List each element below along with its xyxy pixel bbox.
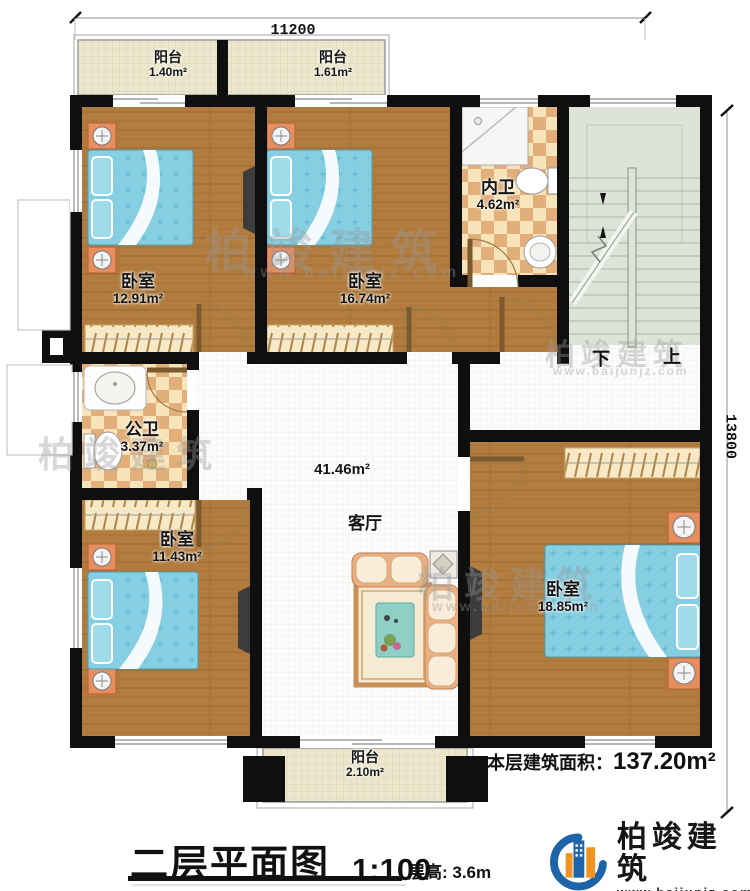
label-living-name: 客厅 xyxy=(348,514,382,533)
label-bedroom-top-left: 卧室 12.91m² xyxy=(113,272,163,306)
brand-logo-icon xyxy=(548,830,609,891)
brand-logo: 柏竣建筑 www.baijunjz.com xyxy=(548,822,750,891)
toilet xyxy=(548,168,558,194)
label-bedroom-top-mid: 卧室 16.74m² xyxy=(340,272,390,306)
label-ensuite-bath: 内卫 4.62m² xyxy=(477,178,520,212)
label-public-bath: 公卫 3.37m² xyxy=(121,420,164,454)
brand-website: www.baijunjz.com xyxy=(617,885,750,891)
title-underline xyxy=(128,876,402,881)
label-living-area: 41.46m² xyxy=(314,462,370,479)
title-underline-shadow xyxy=(132,884,406,886)
floor-plan-page: 柏竣建筑 www.baijunjz.com 柏竣建筑 www.baijunjz.… xyxy=(0,0,750,891)
floor-area-total: 本层建筑面积：137.20m² xyxy=(487,748,716,776)
shower xyxy=(462,107,528,165)
label-bedroom-master: 卧室 18.85m² xyxy=(538,580,588,614)
label-balcony-bottom: 阳台 2.10m² xyxy=(346,750,384,779)
stairs-up-label: 上 xyxy=(663,343,681,369)
sofa-set xyxy=(352,551,459,689)
dimension-right: 13800 xyxy=(722,407,739,467)
tv-bedroom-top-left xyxy=(243,166,255,234)
label-balcony-top-mid: 阳台 1.61m² xyxy=(314,50,352,79)
floor-height: 层高: 3.6m xyxy=(408,858,491,883)
staircase xyxy=(569,107,700,347)
brand-name: 柏竣建筑 xyxy=(617,822,750,885)
toilet xyxy=(84,434,95,468)
stairs-down-label: 下 xyxy=(592,345,610,371)
tv-bedroom-master xyxy=(470,566,482,640)
tv-bedroom-bottom-left xyxy=(238,586,250,654)
dimension-top: 11200 xyxy=(270,22,315,39)
label-balcony-top-left: 阳台 1.40m² xyxy=(149,50,187,79)
roof-outlines xyxy=(7,200,72,455)
label-bedroom-bottom-left: 卧室 11.43m² xyxy=(152,530,202,564)
flue-inner xyxy=(50,338,63,355)
